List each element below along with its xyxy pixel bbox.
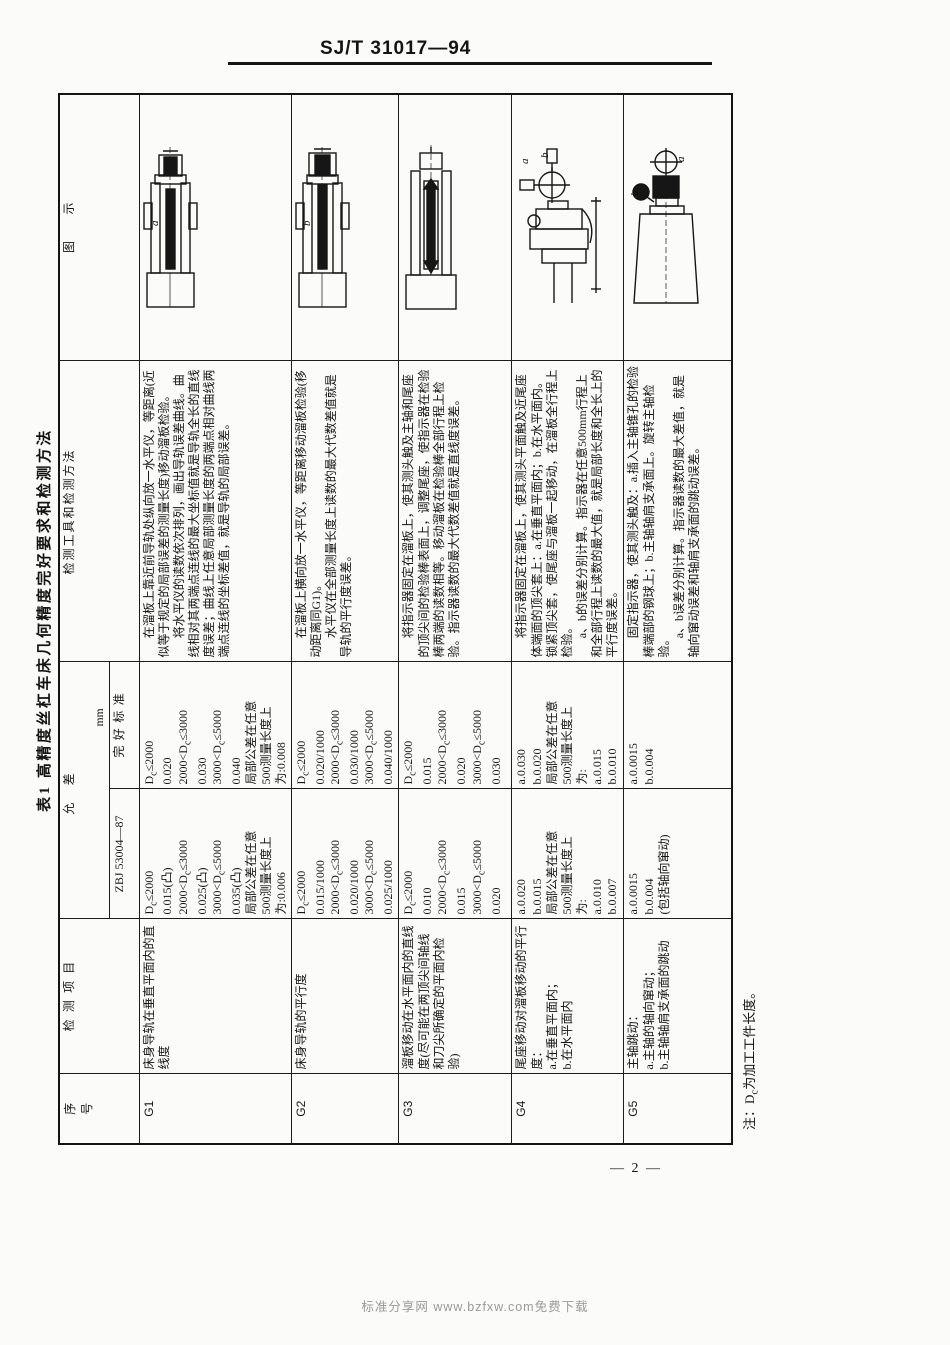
figure-label: b (301, 220, 313, 226)
row-tolerance-zbj: a.0.0015b.0.004(包括轴向窜动) (624, 789, 732, 919)
col-header-method: 检测工具和检测方法 (59, 361, 139, 662)
table-row: G4 尾座移动对溜板移动的平行度： a.在垂直平面内； b.在水平面内 a.0.… (512, 94, 624, 1144)
method-paragraph: 将指示器固定在溜板上，使其测头触及主轴和尾座的顶尖间的检验棒表面上，调整尾座，使… (401, 365, 461, 657)
tolerance-unit: mm (93, 708, 107, 726)
row-item: 溜板移动在水平面内的直线度(尽可能在两顶尖间轴线和刀尖所确定的平面内检验) (399, 919, 512, 1074)
row-tolerance-good: Dc≤20000.0202000<Dc≤30000.0303000<Dc≤500… (139, 662, 292, 789)
test-bar-between-centers-figure (401, 143, 461, 313)
lathe-bed-level-figure: b (294, 145, 351, 310)
row-serial: G5 (624, 1074, 732, 1144)
table-row: G5 主轴跳动： a.主轴的轴向窜动； b.主轴轴肩支承面的跳动 a.0.001… (624, 94, 732, 1144)
header-row-1: 序号 检测项目 允 差 mm 检测工具和检测方法 图示 (59, 94, 109, 1144)
row-method: 在溜板上靠近前导轨处纵向放一水平仪，等距离(近似等于规定的局部误差的测量长度)移… (139, 361, 292, 662)
row-method: 固定指示器，使其测头触及：a.插入主轴锥孔的检验棒端部的钢球上；b.主轴轴肩支承… (624, 361, 732, 662)
scanned-document-page: SJ/T 31017—94 表1 高精度丝杠车床几何精度完好要求和检测方法 序号… (0, 0, 950, 1345)
figure-label: b (539, 152, 551, 158)
row-tolerance-zbj: Dc≤20000.0102000<Dc≤30000.0153000<Dc≤500… (399, 789, 512, 919)
tolerance-label: 允 差 (62, 766, 76, 815)
row-tolerance-good: a.0.030b.0.020局部公差在任意500测量长度上为:a.0.015b.… (512, 662, 624, 789)
figure-label: a (149, 220, 161, 226)
table-note: 注：Dc为加工工件长度。 (733, 95, 767, 1145)
row-figure (399, 94, 512, 361)
figure-label: b (629, 190, 641, 196)
method-paragraph: a、b误差分别计算。指示器读数的最大差值，就是轴向窜动误差和轴肩支承面的跳动误差… (672, 365, 702, 657)
figure-label: a (675, 156, 687, 162)
row-method: 将指示器固定在溜板上，使其测头平面触及近尾座体端面的顶尖套上：a.在垂直平面内；… (512, 361, 624, 662)
rotated-content: 表1 高精度丝杠车床几何精度完好要求和检测方法 序号 检测项目 允 差 mm 检… (33, 95, 713, 1145)
row-figure: a b (512, 94, 624, 361)
row-serial: G3 (399, 1074, 512, 1144)
spec-table: 序号 检测项目 允 差 mm 检测工具和检测方法 图示 ZBJ 53004—87… (58, 93, 733, 1145)
row-serial: G1 (139, 1074, 292, 1144)
row-figure: a b (624, 94, 732, 361)
row-tolerance-zbj: a.0.020b.0.015局部公差在任意500测量长度上为:a.0.010b.… (512, 789, 624, 919)
standard-number: SJ/T 31017—94 (320, 38, 471, 60)
col-header-good: 完好标准 (109, 662, 139, 789)
row-tolerance-good: a.0.0015b.0.004 (624, 662, 732, 789)
tailstock-indicators-figure: a b (514, 145, 609, 310)
figure-label: a (519, 158, 531, 164)
method-paragraph: a、b的误差分别计算。指示器在任意500mm行程上和全部行程上读数的最大值，就是… (575, 365, 620, 657)
method-paragraph: 固定指示器，使其测头触及：a.插入主轴锥孔的检验棒端部的钢球上；b.主轴轴肩支承… (626, 365, 671, 657)
col-header-tolerance: 允 差 mm (59, 662, 109, 919)
table-row: G2 床身导轨的平行度 Dc≤20000.015/10002000<Dc≤300… (292, 94, 399, 1144)
rotated-table-area: 表1 高精度丝杠车床几何精度完好要求和检测方法 序号 检测项目 允 差 mm 检… (33, 95, 713, 1145)
col-header-serial: 序号 (59, 1074, 139, 1144)
method-paragraph: 水平仪在全部测量长度上读数的最大代数差值就是导轨的平行度误差。 (324, 365, 354, 657)
method-paragraph: 在溜板上横向放一水平仪，等距离移动溜板检验(移动距离同G1)。 (294, 365, 324, 657)
watermark: 标准分享网 www.bzfxw.com免费下载 (0, 1296, 950, 1315)
row-item: 尾座移动对溜板移动的平行度： a.在垂直平面内； b.在水平面内 (512, 919, 624, 1074)
row-item: 主轴跳动： a.主轴的轴向窜动； b.主轴轴肩支承面的跳动 (624, 919, 732, 1074)
row-tolerance-zbj: Dc≤20000.015(凸)2000<Dc≤30000.025(凸)3000<… (139, 789, 292, 919)
row-item: 床身导轨的平行度 (292, 919, 399, 1074)
row-method: 在溜板上横向放一水平仪，等距离移动溜板检验(移动距离同G1)。 水平仪在全部测量… (292, 361, 399, 662)
method-paragraph: 在溜板上靠近前导轨处纵向放一水平仪，等距离(近似等于规定的局部误差的测量长度)移… (142, 365, 172, 657)
row-figure: b (292, 94, 399, 361)
row-figure: a (139, 94, 292, 361)
header-rule (228, 62, 712, 65)
row-method: 将指示器固定在溜板上，使其测头触及主轴和尾座的顶尖间的检验棒表面上，调整尾座，使… (399, 361, 512, 662)
spindle-runout-figure: a b (626, 148, 716, 308)
row-tolerance-good: Dc≤20000.0152000<Dc≤30000.0203000<Dc≤500… (399, 662, 512, 789)
row-tolerance-zbj: Dc≤20000.015/10002000<Dc≤30000.020/10003… (292, 789, 399, 919)
row-serial: G4 (512, 1074, 624, 1144)
col-header-zbj: ZBJ 53004—87 (109, 789, 139, 919)
page-number: — 2 — (586, 1161, 686, 1177)
row-serial: G2 (292, 1074, 399, 1144)
method-paragraph: 将水平仪的读数依次排列，画出导轨误差曲线。曲线相对其两端点连线的最大坐标值就是导… (172, 365, 232, 657)
table-row: G1 床身导轨在垂直平面内的直线度 Dc≤20000.015(凸)2000<Dc… (139, 94, 292, 1144)
col-header-figure: 图示 (59, 94, 139, 361)
row-item: 床身导轨在垂直平面内的直线度 (139, 919, 292, 1074)
table-title: 表1 高精度丝杠车床几何精度完好要求和检测方法 (33, 95, 58, 1145)
method-paragraph: 将指示器固定在溜板上，使其测头平面触及近尾座体端面的顶尖套上：a.在垂直平面内；… (514, 365, 574, 657)
table-row: G3 溜板移动在水平面内的直线度(尽可能在两顶尖间轴线和刀尖所确定的平面内检验)… (399, 94, 512, 1144)
lathe-bed-level-figure: a (142, 145, 199, 310)
row-tolerance-good: Dc≤20000.020/10002000<Dc≤30000.030/10003… (292, 662, 399, 789)
col-header-item: 检测项目 (59, 919, 139, 1074)
